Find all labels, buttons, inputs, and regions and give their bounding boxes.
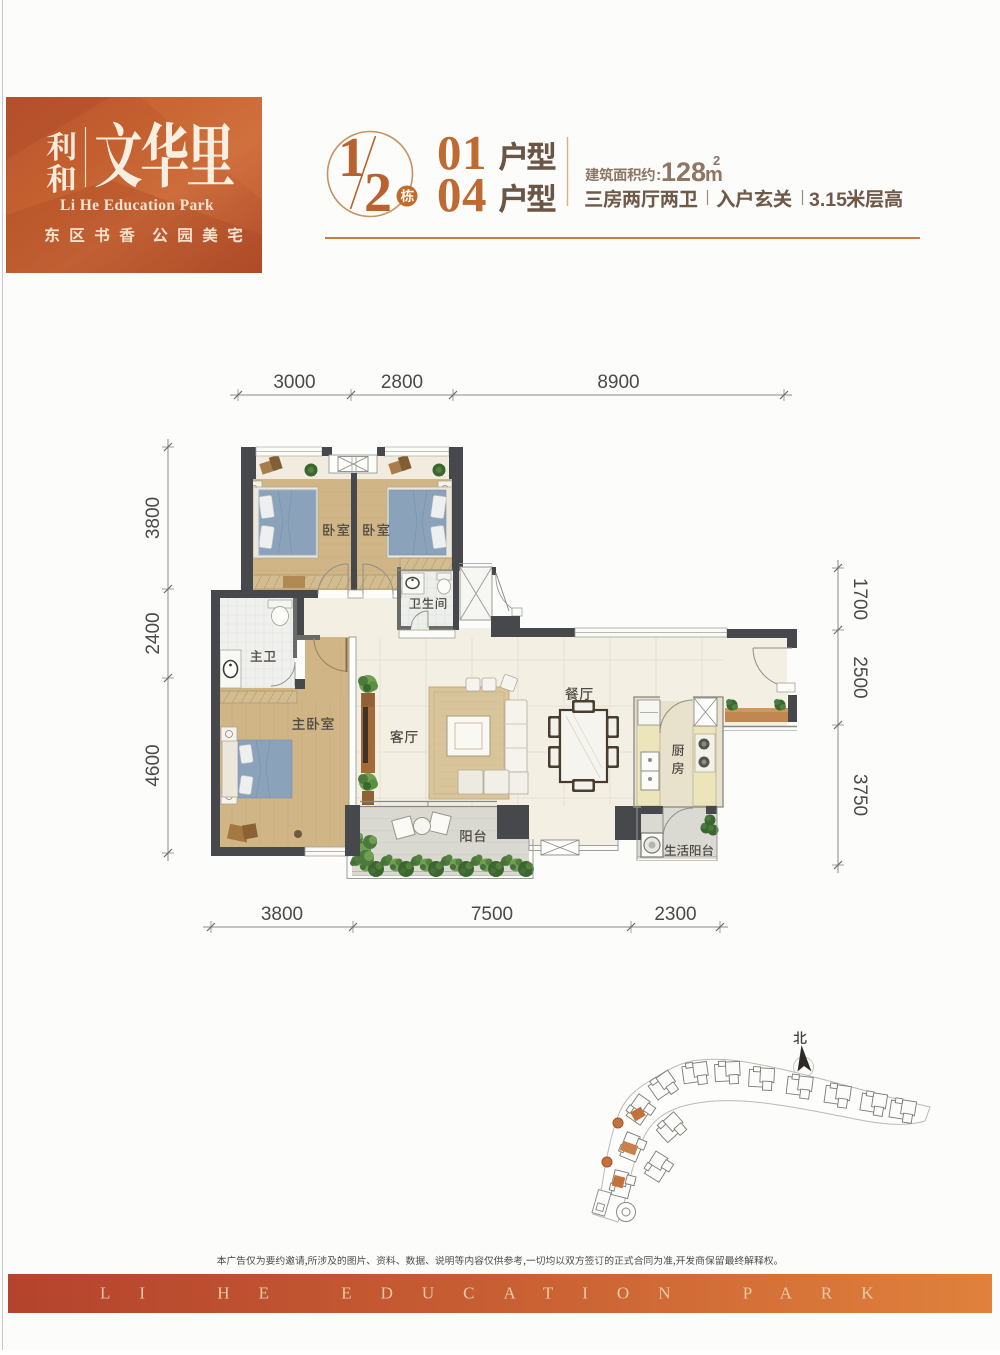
svg-text:4600: 4600 xyxy=(143,744,164,786)
svg-text:1700: 1700 xyxy=(849,578,870,620)
svg-text:2: 2 xyxy=(713,153,720,168)
svg-text:3000: 3000 xyxy=(273,372,315,393)
svg-text:2400: 2400 xyxy=(143,612,164,654)
svg-text:1: 1 xyxy=(338,127,366,189)
svg-text:2: 2 xyxy=(364,162,392,224)
svg-text:3800: 3800 xyxy=(261,904,303,925)
svg-text:3750: 3750 xyxy=(849,774,870,816)
svg-text:Li He Education Park: Li He Education Park xyxy=(60,197,214,214)
svg-text:7500: 7500 xyxy=(471,904,513,925)
svg-text:2500: 2500 xyxy=(849,656,870,698)
svg-text:8900: 8900 xyxy=(597,372,639,393)
svg-text:3.15: 3.15 xyxy=(809,189,847,211)
svg-text:04: 04 xyxy=(437,167,487,222)
svg-text:128: 128 xyxy=(661,157,706,187)
svg-text:2300: 2300 xyxy=(654,904,696,925)
svg-text:3800: 3800 xyxy=(143,497,164,539)
svg-text:2800: 2800 xyxy=(381,372,423,393)
svg-text:LI HE EDUCATION PARK: LI HE EDUCATION PARK xyxy=(100,1284,903,1303)
